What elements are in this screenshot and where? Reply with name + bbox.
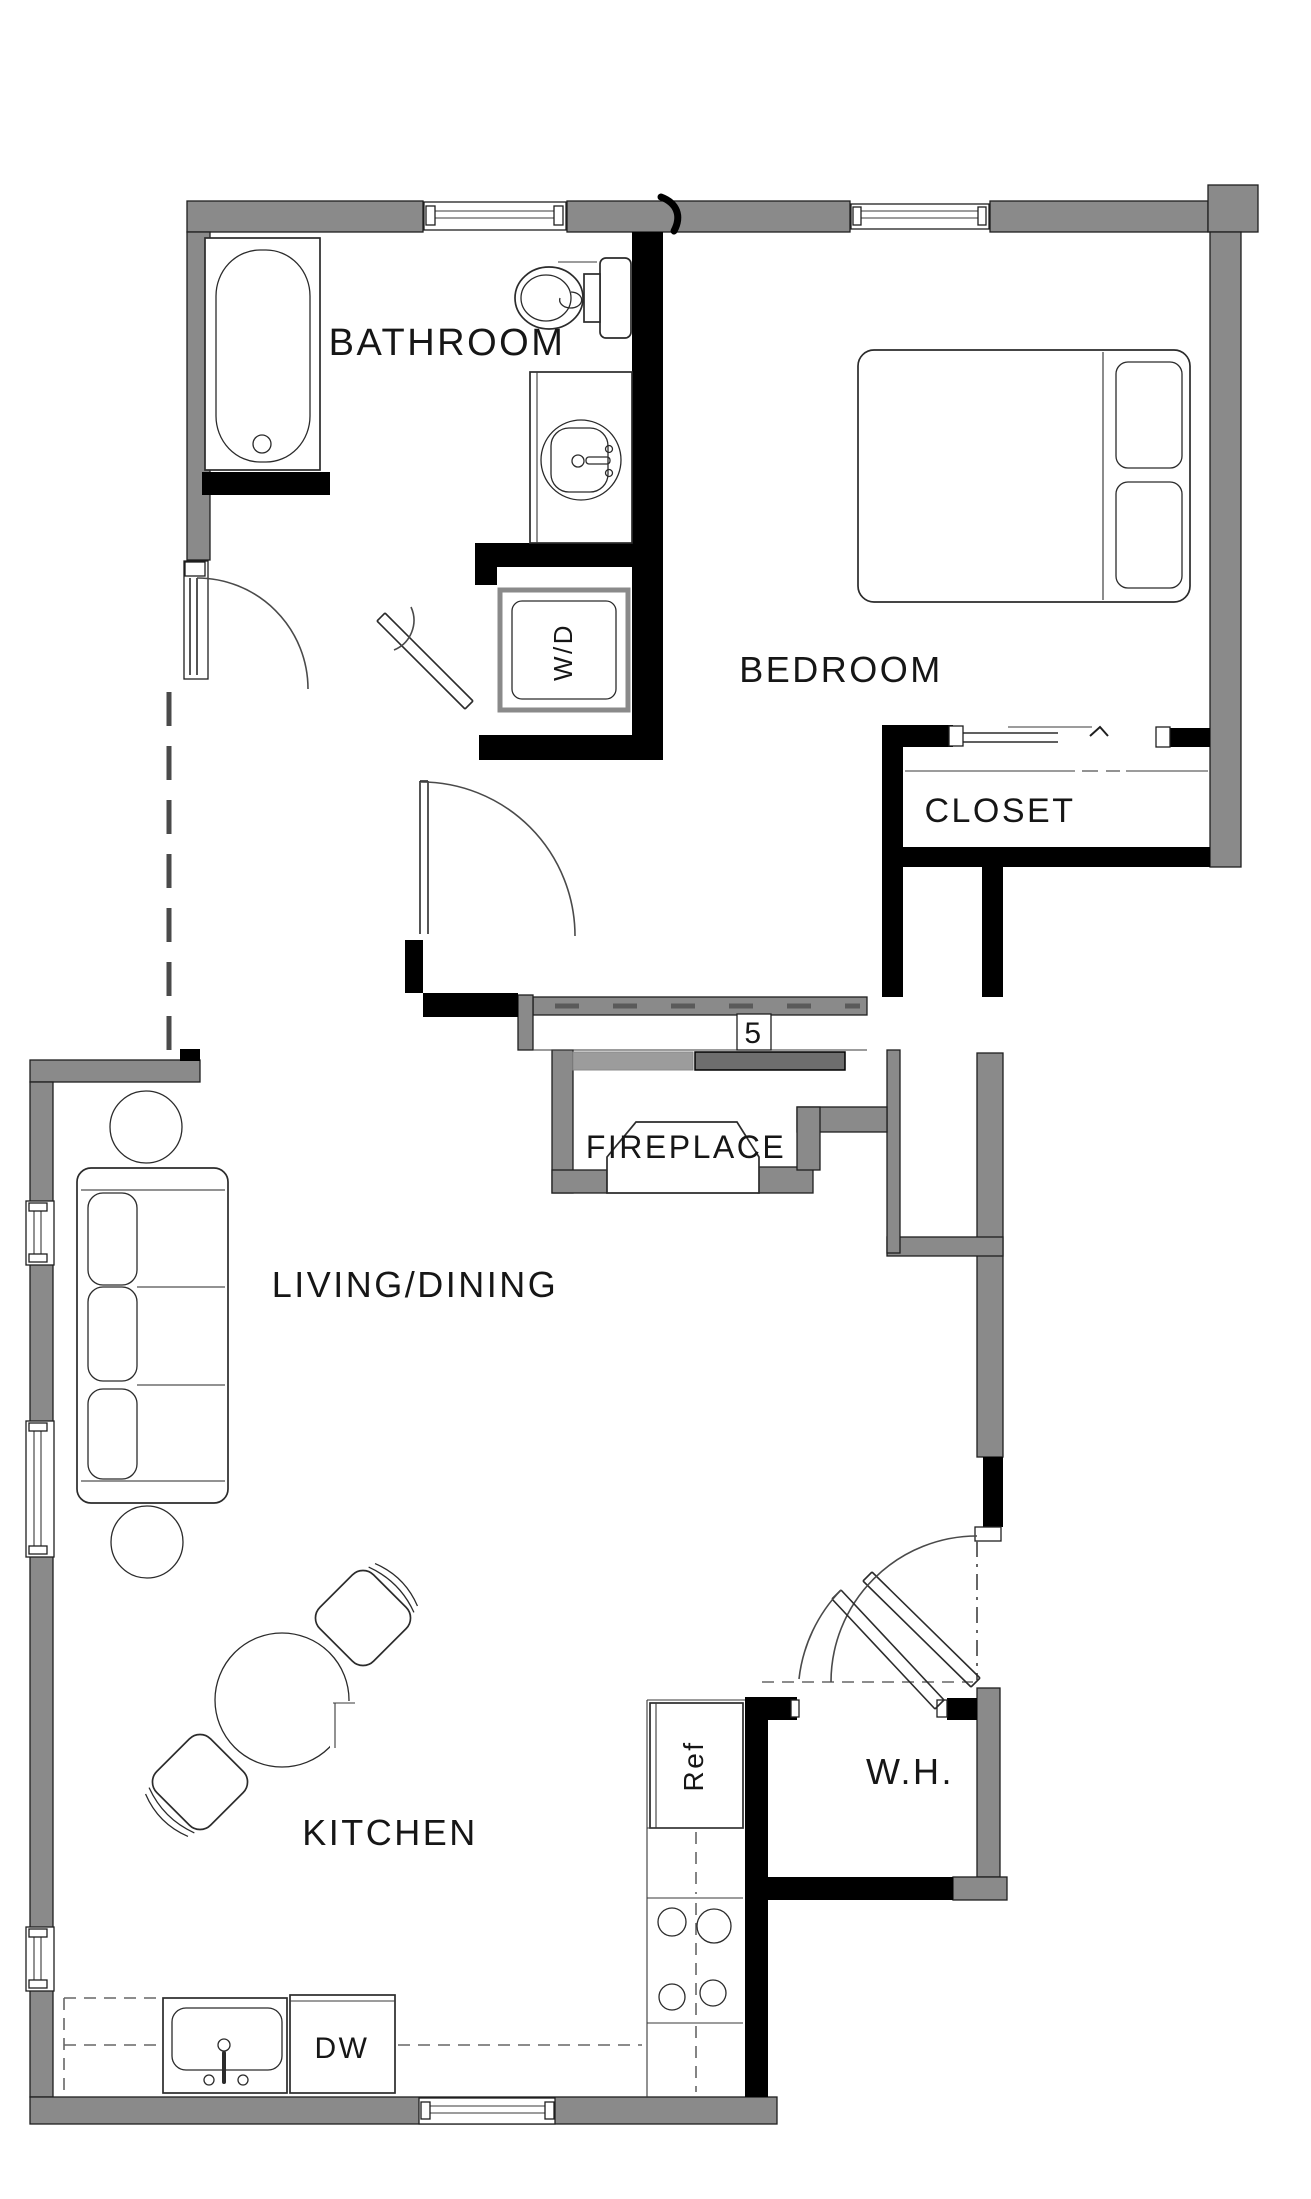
window-bedroom [851, 204, 989, 229]
windows [26, 202, 989, 2124]
burner [658, 1908, 686, 1936]
wall-corner-block [1208, 185, 1258, 232]
side-table [111, 1506, 183, 1578]
wall-wd-notch [475, 567, 497, 585]
window-bathroom [424, 202, 566, 230]
dining-chair [309, 1554, 427, 1672]
bathroom-west-door [184, 561, 308, 689]
bathtub [205, 238, 320, 470]
kitchen-sink [163, 1998, 287, 2093]
window-living-small-top [26, 1201, 54, 1265]
wall-wd-bottom [479, 735, 663, 760]
burner [659, 1984, 685, 2010]
burner [700, 1980, 726, 2006]
table-notch [330, 1701, 356, 1748]
washer-dryer-label: W/D [548, 623, 578, 681]
wall-fireplace-right-interior [887, 1050, 900, 1253]
window-kitchen-bottom [419, 2098, 555, 2124]
wall-wd-top [475, 543, 637, 567]
wall-bottom [30, 2097, 777, 2124]
sliding-track-band [533, 997, 867, 1015]
sliding-door-panel-open [573, 1052, 693, 1070]
wall-fireplace-step-v [797, 1107, 820, 1170]
label-water-heater: W.H. [866, 1751, 954, 1792]
wall-step-cap [180, 1049, 200, 1061]
wall-hall-horiz [423, 993, 518, 1017]
label-bathroom: BATHROOM [329, 322, 566, 364]
hall-door [420, 781, 575, 936]
entry-door [762, 1527, 1001, 1687]
label-bedroom: BEDROOM [739, 649, 943, 690]
window-living-large [26, 1421, 54, 1557]
wall-chase-left [882, 867, 903, 997]
wall-wh-top-right [947, 1698, 977, 1720]
floor-plan: W/D [0, 0, 1311, 2199]
wall-closet-bottom [903, 847, 1210, 867]
closet-door-arrow [1090, 727, 1108, 736]
dishwasher-label: DW [315, 2032, 370, 2065]
window-kitchen-left [26, 1927, 54, 1991]
sofa [77, 1168, 228, 1503]
wall-hall-vert [405, 940, 423, 993]
label-kitchen: KITCHEN [302, 1812, 478, 1853]
wall-top-mid [567, 201, 850, 232]
toilet-seat-joint [584, 274, 600, 322]
wd-closet-door [377, 607, 473, 709]
sink-vanity [530, 372, 632, 543]
wall-step-horizontal [30, 1060, 200, 1082]
washer-dryer: W/D [500, 590, 628, 710]
dining-chair [136, 1728, 254, 1846]
label-fireplace: FIREPLACE [586, 1129, 786, 1165]
wall-wh-bottom [768, 1877, 953, 1900]
dining-set [136, 1554, 428, 1847]
bed [858, 350, 1190, 602]
label-living-dining: LIVING/DINING [272, 1264, 559, 1305]
toilet-tank [600, 258, 631, 338]
wh-door [791, 1590, 947, 1717]
label-door-number: 5 [744, 1017, 763, 1050]
refrigerator-label: Ref [678, 1740, 709, 1791]
closet-details [905, 726, 1208, 771]
living-furniture [77, 1091, 228, 1578]
bedroom-furniture [858, 350, 1190, 602]
label-closet: CLOSET [924, 792, 1075, 830]
sliding-track-stub [518, 995, 533, 1050]
wall-closet-top-left [882, 725, 953, 747]
wall-entry-jamb [983, 1457, 1003, 1527]
wall-fireplace-bottom-left [552, 1170, 607, 1193]
dining-table [215, 1633, 349, 1767]
wall-tub-end [202, 472, 330, 495]
wall-wh-right [977, 1688, 1000, 1877]
wall-right [1210, 232, 1241, 867]
wall-wh-corner [953, 1877, 1007, 1900]
toilet-bowl [515, 267, 583, 329]
burner [697, 1909, 731, 1943]
wall-top-left [187, 201, 423, 232]
wall-bathroom-right [632, 232, 663, 760]
wall-fireplace-bottom-right [758, 1167, 813, 1193]
stove [658, 1908, 731, 2010]
sliding-door-panel [695, 1052, 845, 1070]
wall-wh-left [745, 1697, 768, 2097]
wall-wh-top-left [745, 1697, 797, 1720]
side-table [110, 1091, 182, 1163]
refrigerator: Ref [650, 1703, 743, 1828]
wall-top-right [990, 201, 1208, 232]
wall-chase-right [982, 867, 1003, 997]
dishwasher: DW [290, 1995, 395, 2093]
wall-jog [887, 1237, 1003, 1256]
